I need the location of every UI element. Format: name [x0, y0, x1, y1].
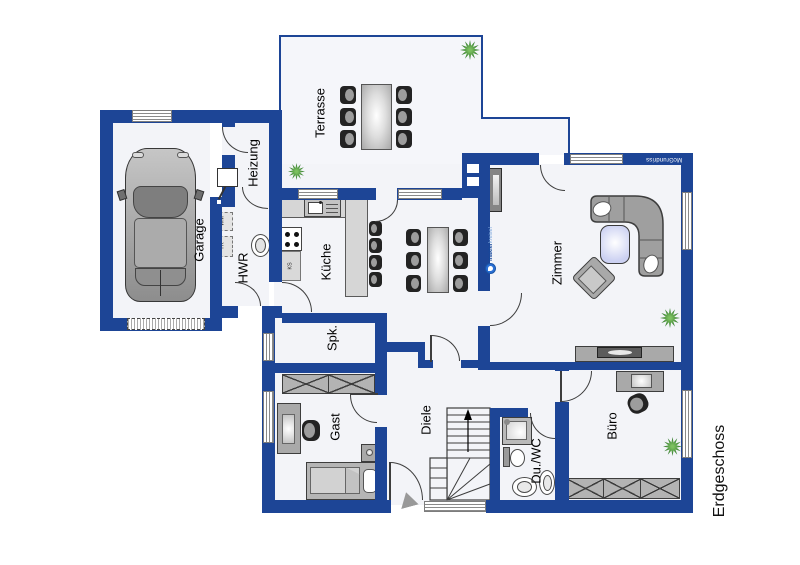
kitchen-peninsula: [345, 197, 368, 297]
office-wardrobe: [566, 478, 605, 499]
terrace-border: [568, 117, 570, 155]
car-headlight: [177, 152, 189, 158]
terrace-chair: [340, 108, 356, 126]
window: [298, 189, 338, 199]
stove: [281, 227, 302, 251]
car-trunk-line: [160, 270, 161, 296]
room-label-zimmer: Zimmer: [551, 241, 564, 285]
office-desk: [616, 371, 664, 392]
window: [263, 333, 274, 361]
door-leaf: [350, 393, 378, 395]
door-leaf: [560, 371, 562, 402]
terrace-chair: [396, 86, 412, 104]
terrace-chair: [340, 86, 356, 104]
shaft-block: [462, 153, 490, 198]
guest-chair: [302, 420, 320, 441]
room-label-kueche: Küche: [320, 244, 333, 281]
terrace-border: [481, 35, 483, 119]
wall-segment: [210, 306, 238, 318]
sideboard-tv: [597, 347, 642, 358]
staircase: [428, 406, 498, 502]
kitchen-sink: [304, 199, 341, 217]
dining-chair: [406, 252, 421, 269]
dining-chair: [406, 275, 421, 292]
room-label-garage: Garage: [193, 218, 206, 261]
fridge-label: KS: [288, 262, 294, 269]
wall-segment: [418, 342, 425, 368]
terrace-chair: [396, 130, 412, 148]
dining-table: [427, 227, 449, 293]
column-core: [217, 200, 221, 204]
wall-segment: [100, 110, 282, 123]
window: [398, 189, 442, 199]
wall-segment: [262, 500, 391, 513]
door-leaf: [430, 335, 432, 362]
terrace-table: [361, 84, 392, 150]
watermark-light: kreisel: [488, 227, 494, 243]
terrace-chair: [396, 108, 412, 126]
office-wardrobe: [640, 478, 680, 499]
window: [570, 154, 623, 164]
room-label-spk: Spk.: [326, 325, 339, 351]
watermark-logo-icon: [485, 263, 496, 274]
floor-plan: KS WM TR: [0, 0, 800, 565]
shower: [502, 417, 532, 445]
boiler: [217, 168, 238, 187]
terrace-chair: [340, 130, 356, 148]
wall-segment: [461, 360, 490, 368]
brand-label: McGrundriss: [646, 156, 682, 162]
wall-segment: [490, 408, 500, 500]
wall-segment: [275, 363, 385, 373]
room-label-heizung: Heizung: [247, 139, 260, 187]
shaft-opening: [467, 164, 479, 173]
wall-segment: [375, 373, 387, 395]
shaft-opening: [467, 177, 479, 186]
bar-chair: [369, 221, 382, 236]
entry-sidelight: [424, 501, 486, 512]
toilet: [503, 447, 510, 467]
dining-chair: [453, 275, 468, 292]
terrace-border: [279, 35, 281, 112]
window: [682, 390, 692, 458]
watermark: maklerkreisel: [488, 227, 494, 261]
car-headlight: [132, 152, 144, 158]
floor-title: Erdgeschoss: [712, 425, 728, 518]
bar-chair: [369, 238, 382, 253]
toilet-bowl: [510, 449, 525, 467]
coffee-table: [600, 225, 630, 264]
utility-basin: [251, 234, 270, 257]
room-label-gast: Gast: [329, 413, 342, 440]
terrace-border: [481, 117, 570, 119]
room-label-hwr: HWR: [237, 252, 250, 283]
garage-door: [127, 318, 205, 330]
wall-segment: [555, 362, 569, 371]
room-label-duwc: Du./WC: [530, 438, 543, 484]
window: [132, 110, 172, 122]
terrace-border: [280, 35, 483, 37]
wall-segment: [222, 110, 235, 127]
wall-segment: [375, 427, 387, 513]
wall-segment: [555, 402, 569, 513]
wall-segment: [486, 500, 693, 513]
watermark-bold: makler: [488, 243, 494, 261]
bar-chair: [369, 272, 382, 287]
guest-bed: [306, 462, 379, 500]
wall-segment: [478, 362, 693, 370]
window: [682, 192, 692, 250]
door-leaf: [389, 462, 391, 500]
room-label-diele: Diele: [420, 405, 433, 435]
room-label-buero: Büro: [606, 412, 619, 439]
car-roof: [134, 218, 187, 268]
wall-segment: [282, 313, 385, 323]
wall-segment: [100, 110, 113, 331]
wardrobe: [328, 374, 375, 394]
room-label-terrasse: Terrasse: [314, 88, 327, 138]
window: [263, 391, 274, 443]
car: [125, 148, 196, 302]
guest-desk: [277, 403, 301, 454]
wardrobe: [282, 374, 330, 394]
car-windshield: [133, 186, 188, 218]
dining-chair: [406, 229, 421, 246]
terrace-floor: [481, 119, 568, 155]
dining-chair: [453, 252, 468, 269]
bar-chair: [369, 255, 382, 270]
office-wardrobe: [603, 478, 642, 499]
dining-chair: [453, 229, 468, 246]
